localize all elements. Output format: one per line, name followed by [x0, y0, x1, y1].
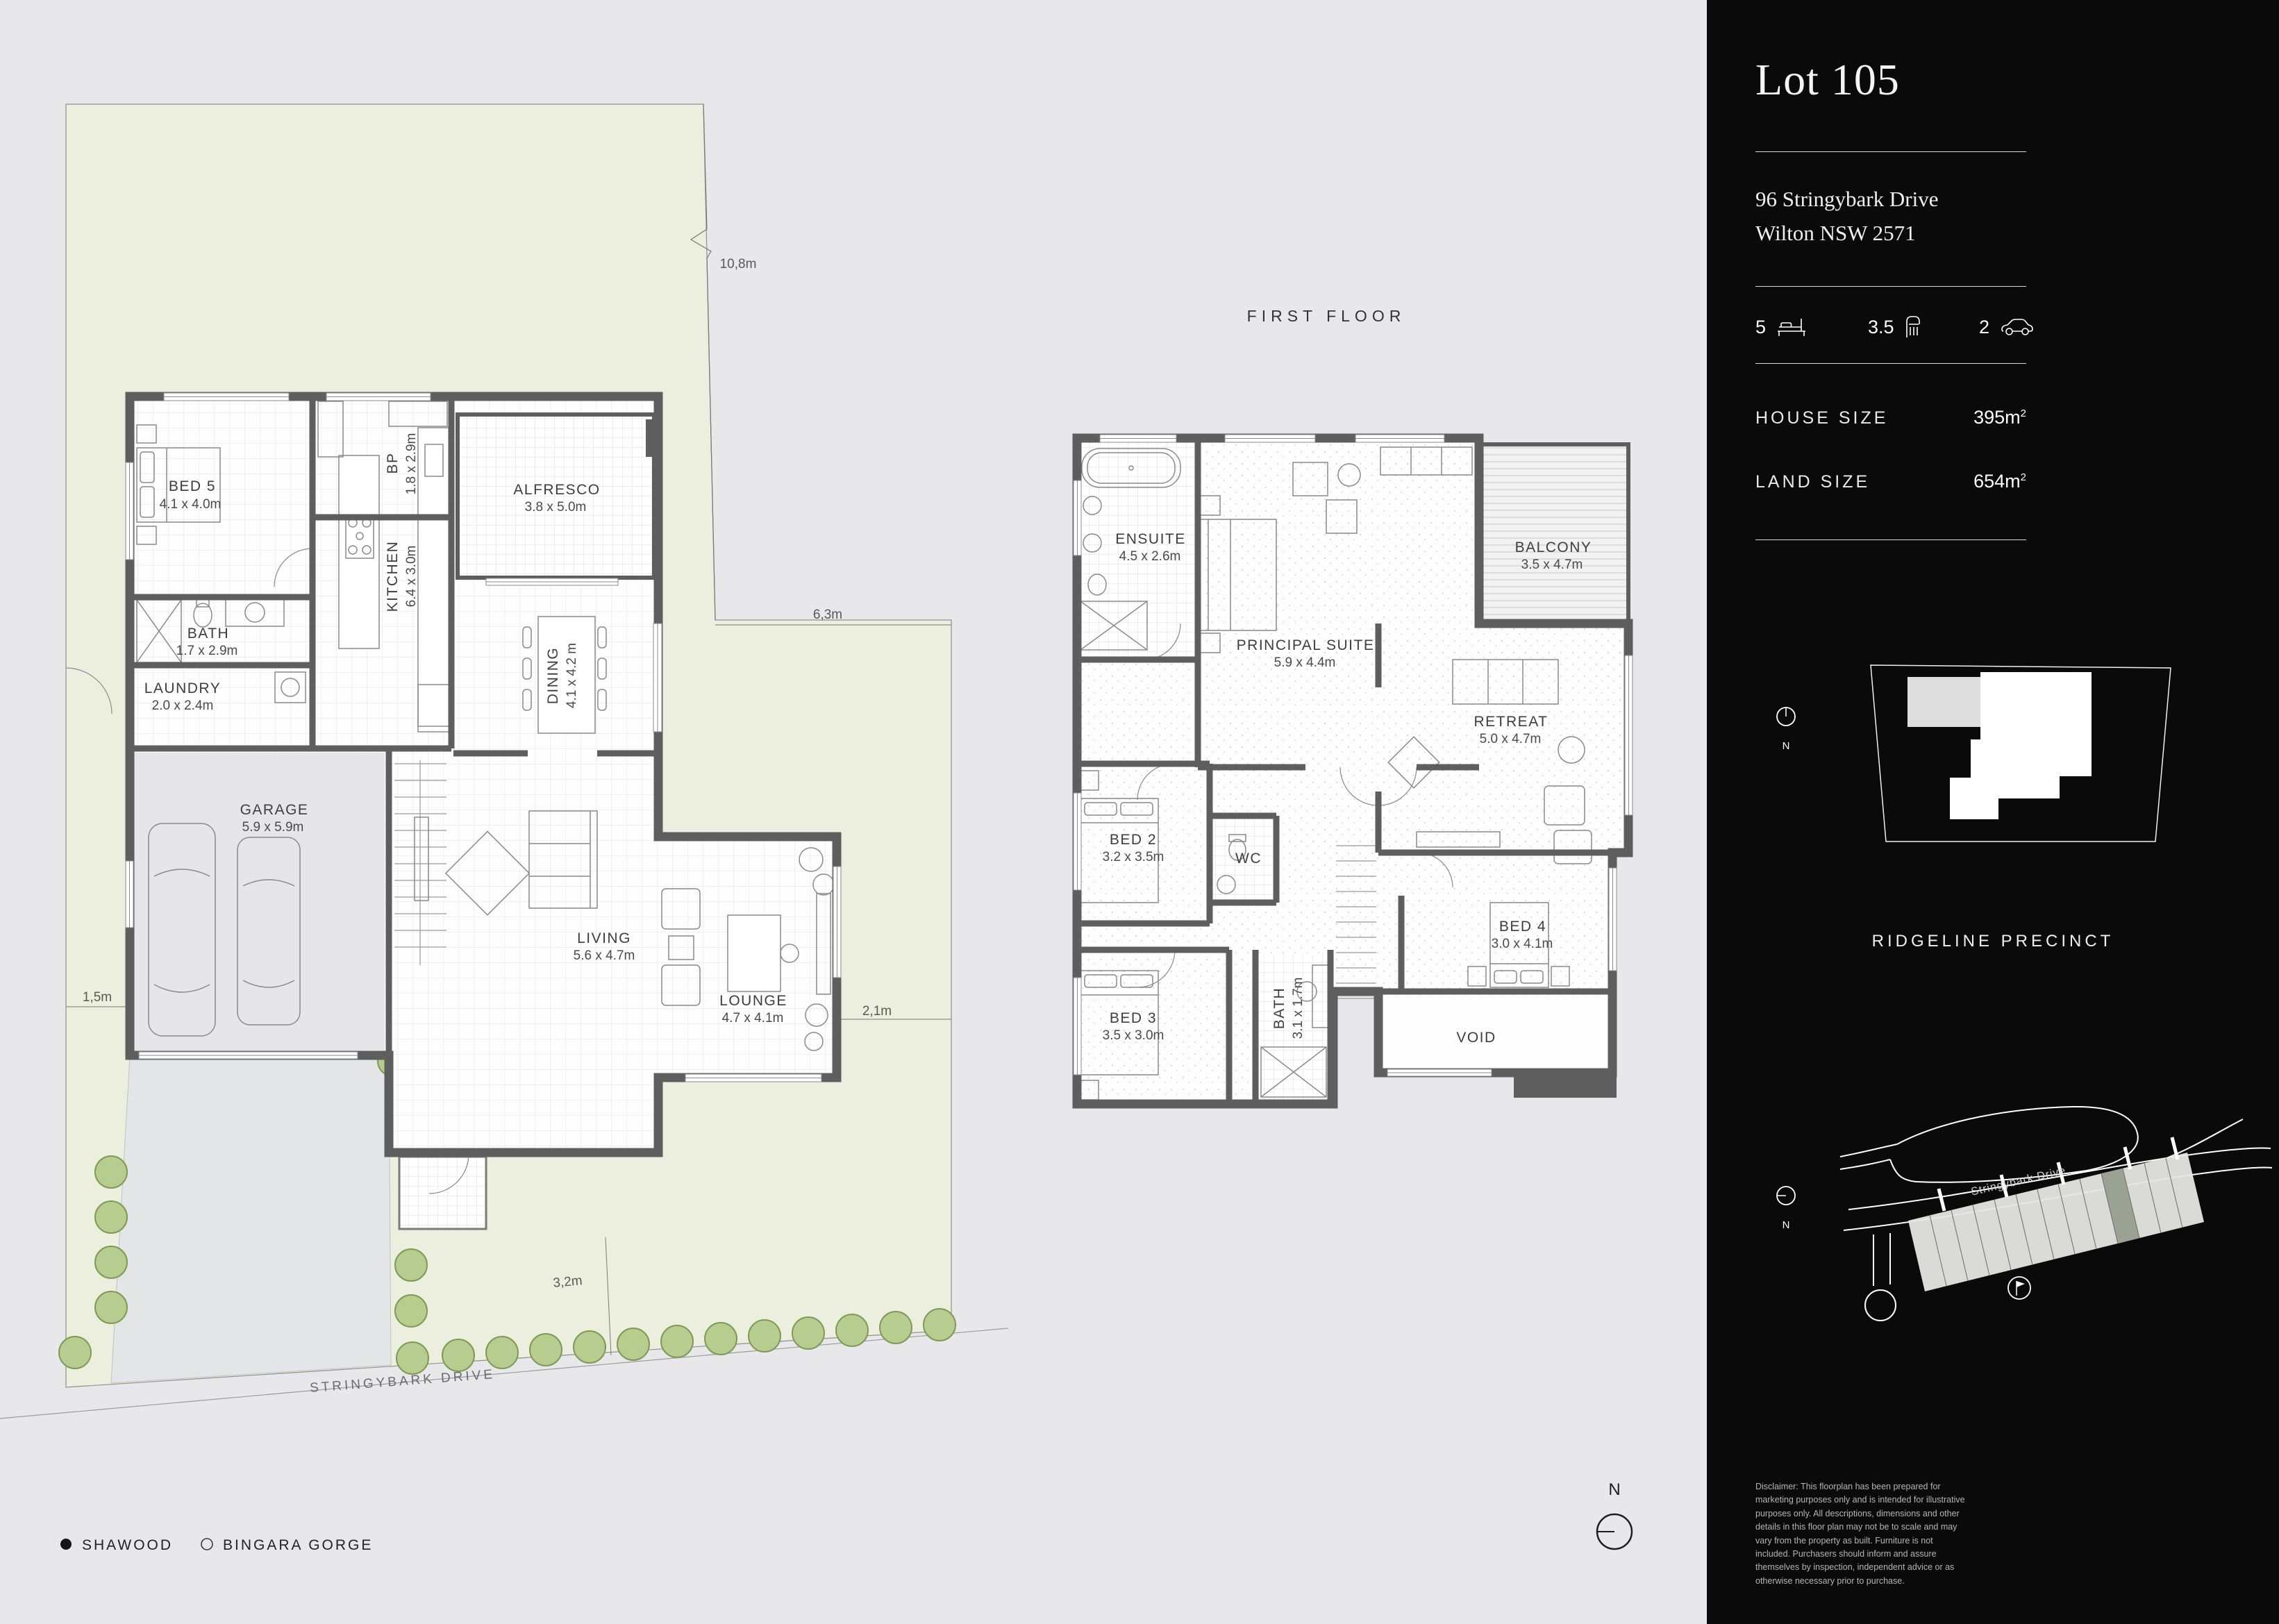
land-size-value: 654m2 [1973, 471, 2026, 492]
room-dims-garage: 5.9 x 5.9m [242, 820, 304, 835]
room-dims-ensuite: 4.5 x 2.6m [1119, 549, 1181, 564]
room-label-ensuite: ENSUITE [1115, 531, 1186, 547]
room-label-bed4: BED 4 [1499, 919, 1546, 935]
room-label-principal: PRINCIPAL SUITE [1237, 637, 1375, 653]
room-dims-bed2: 3.2 x 3.5m [1103, 850, 1164, 864]
stat-baths: 3.5 [1868, 312, 1923, 342]
dim-right: 6,3m [813, 608, 842, 622]
room-dims-retreat: 5.0 x 4.7m [1480, 732, 1542, 746]
divider [1755, 539, 2026, 540]
floorplan-page: BED 5 4.1 x 4.0m BATH 1.7 x 2.9m LAUNDRY… [0, 0, 2279, 1624]
room-label-bath-ff: BATH [1271, 987, 1287, 1029]
bed-icon [1776, 317, 1807, 337]
car-icon [2000, 317, 2035, 337]
legend-bingara: BINGARA GORGE [223, 1537, 373, 1553]
room-dims-bed3: 3.5 x 3.0m [1103, 1028, 1164, 1043]
room-dims-lounge: 4.7 x 4.1m [722, 1011, 784, 1026]
house-size-value: 395m2 [1973, 407, 2026, 428]
room-dims-bath-g: 1.7 x 2.9m [176, 644, 238, 658]
room-dims-alfresco: 3.8 x 5.0m [525, 500, 587, 514]
baths-count: 3.5 [1868, 317, 1894, 338]
room-label-kitchen: KITCHEN [385, 541, 401, 612]
room-label-garage: GARAGE [240, 802, 309, 818]
room-label-living: LIVING [577, 930, 631, 946]
stat-beds: 5 [1755, 312, 1807, 342]
property-info-sidebar: Lot 105 96 Stringybark Drive Wilton NSW … [1707, 0, 2279, 1624]
room-label-wc: WC [1235, 851, 1262, 867]
room-label-bed5: BED 5 [169, 478, 216, 494]
driveway [111, 1057, 391, 1383]
legend-shawood: SHAWOOD [82, 1537, 173, 1553]
dim-left: 1,5m [83, 990, 112, 1005]
room-dims-kitchen: 6.4 x 3.0m [404, 546, 419, 608]
room-dims-principal: 5.9 x 4.4m [1274, 655, 1336, 670]
room-label-retreat: RETREAT [1474, 714, 1548, 730]
address: 96 Stringybark Drive Wilton NSW 2571 [1755, 182, 1938, 250]
beds-count: 5 [1755, 317, 1766, 338]
dim-drive: 3,2m [553, 1273, 583, 1291]
room-dims-bed5: 4.1 x 4.0m [160, 497, 222, 512]
room-dims-living: 5.6 x 4.7m [574, 948, 635, 963]
land-size-label: LAND SIZE [1755, 472, 1870, 492]
room-label-dining: DINING [545, 647, 561, 705]
room-dims-dining: 4.1 x 4.2 m [565, 643, 579, 708]
room-dims-laundry: 2.0 x 2.4m [152, 698, 214, 713]
divider [1755, 363, 2026, 364]
room-label-bath-g: BATH [187, 626, 229, 642]
shawood-dot-icon [60, 1539, 72, 1550]
room-label-laundry: LAUNDRY [144, 680, 221, 696]
divider [1755, 286, 2026, 287]
lot-title: Lot 105 [1755, 54, 1900, 106]
divider [1755, 151, 2026, 152]
dim-lounge: 2,1m [862, 1004, 892, 1019]
room-label-bed3: BED 3 [1110, 1010, 1157, 1026]
room-label-lounge: LOUNGE [719, 993, 787, 1009]
room-label-bed2: BED 2 [1110, 832, 1157, 848]
room-dims-balcony: 3.5 x 4.7m [1521, 558, 1583, 572]
room-dims-bed4: 3.0 x 4.1m [1492, 937, 1553, 951]
address-line2: Wilton NSW 2571 [1755, 216, 1938, 250]
room-dims-bp: 1.8 x 2.9m [404, 433, 419, 495]
house-size-row: HOUSE SIZE 395m2 [1755, 407, 2026, 428]
shower-icon [1905, 315, 1923, 339]
room-label-bp: BP [385, 452, 401, 474]
address-line1: 96 Stringybark Drive [1755, 182, 1938, 216]
land-size-row: LAND SIZE 654m2 [1755, 471, 2026, 492]
house-size-label: HOUSE SIZE [1755, 408, 1888, 428]
dim-top: 10,8m [720, 257, 757, 271]
room-label-balcony: BALCONY [1515, 539, 1592, 555]
stat-cars: 2 [1979, 312, 2035, 342]
room-dims-bath-ff: 3.1 x 1.7m [1291, 978, 1305, 1039]
room-label-alfresco: ALFRESCO [513, 482, 600, 498]
compass-n-label: N [1608, 1480, 1620, 1499]
disclaimer-text: Disclaimer: This floorplan has been prep… [1755, 1480, 1967, 1588]
room-label-void: VOID [1456, 1030, 1496, 1046]
cars-count: 2 [1979, 317, 1989, 338]
precinct-title: RIDGELINE PRECINCT [1707, 932, 2279, 951]
first-floor-title: FIRST FLOOR [1247, 307, 1406, 325]
stats-row: 5 3.5 2 [1755, 312, 2026, 342]
